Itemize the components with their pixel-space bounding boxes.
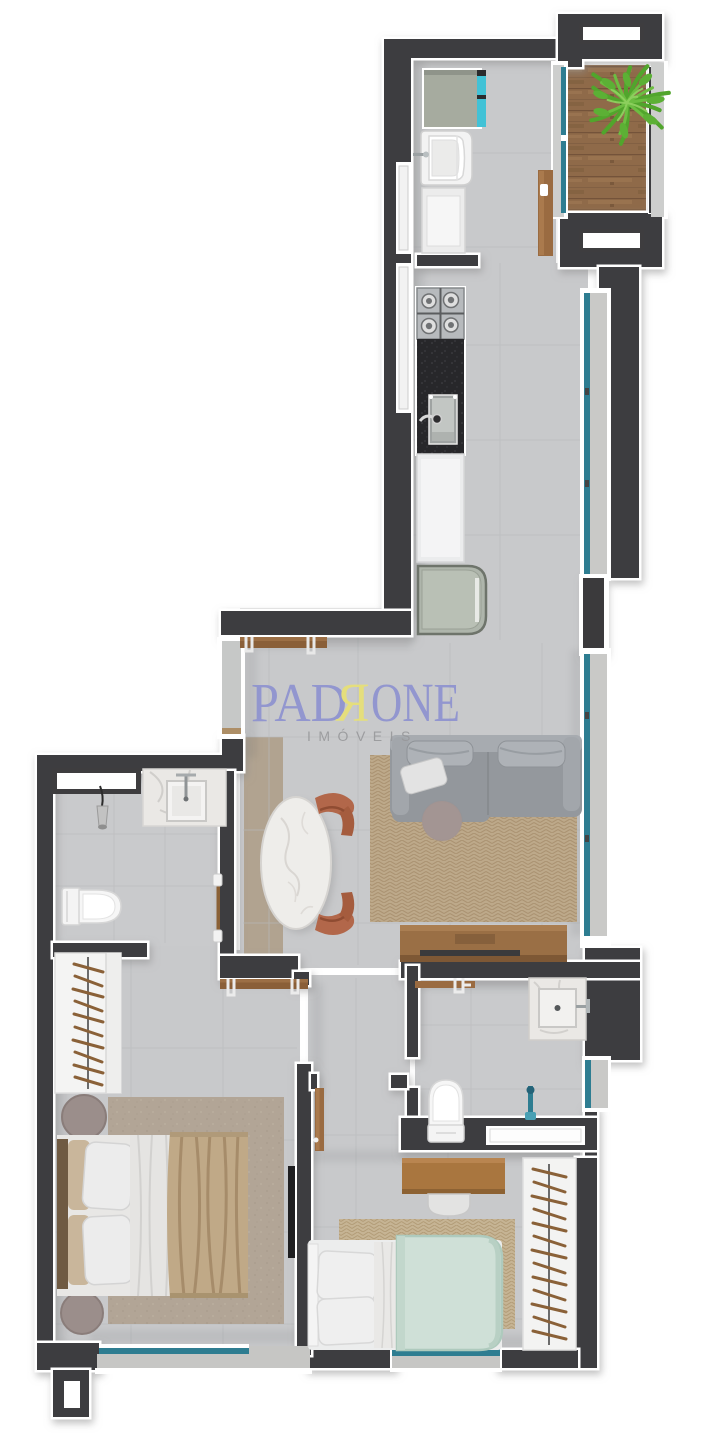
svg-text:ONE: ONE [371, 672, 460, 733]
svg-text:IMÓVEIS: IMÓVEIS [307, 728, 418, 744]
svg-text:PAD: PAD [251, 672, 347, 733]
svg-text:R: R [335, 672, 369, 733]
